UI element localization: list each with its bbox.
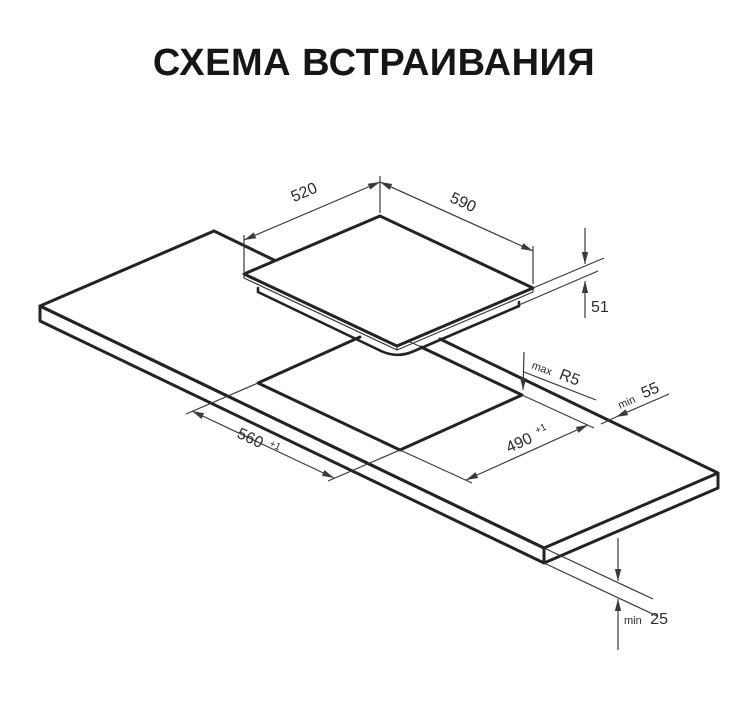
dim-rear-clearance: min 55: [601, 379, 669, 424]
dim-value: 25: [650, 611, 668, 628]
dim-tolerance: +1: [267, 439, 282, 454]
dim-value: 560: [234, 425, 265, 452]
dim-prefix: min: [624, 615, 642, 627]
extension-line: [519, 258, 604, 305]
dim-cooktop-length-label: 590: [447, 190, 478, 217]
dim-cooktop-height-label: 51: [591, 299, 609, 316]
extension-line: [544, 548, 657, 616]
page: СХЕМА ВСТРАИВАНИЯ: [0, 0, 748, 715]
dim-countertop-thickness-label: min 25: [624, 611, 668, 628]
installation-diagram: 520 590 51 max R5: [0, 0, 748, 715]
dim-cooktop-width-label: 520: [289, 180, 320, 206]
